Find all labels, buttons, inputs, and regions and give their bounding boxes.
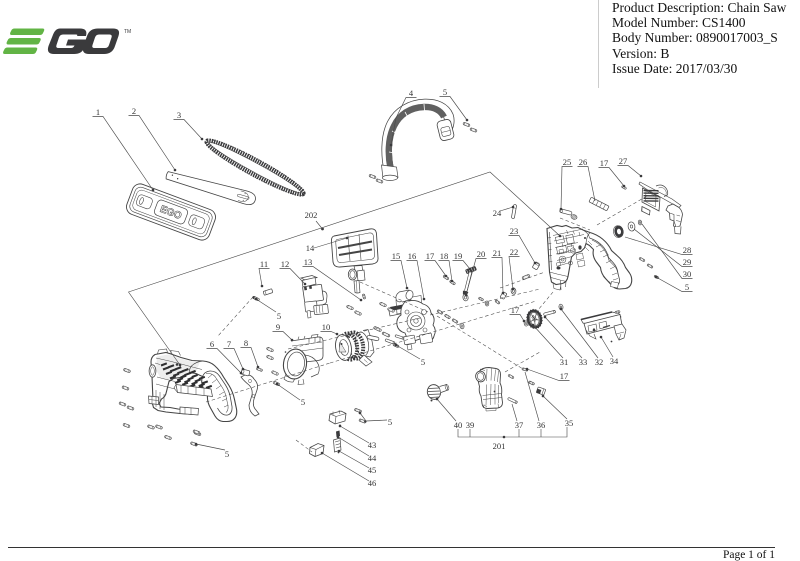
- svg-text:18: 18: [440, 251, 449, 261]
- svg-text:28: 28: [683, 245, 692, 255]
- svg-text:24: 24: [493, 208, 502, 218]
- svg-text:15: 15: [392, 251, 401, 261]
- svg-text:2: 2: [132, 106, 136, 116]
- svg-text:20: 20: [477, 249, 486, 259]
- svg-text:10: 10: [322, 322, 331, 332]
- svg-text:13: 13: [304, 257, 313, 267]
- svg-text:5: 5: [388, 417, 392, 427]
- svg-text:11: 11: [260, 259, 268, 269]
- svg-text:21: 21: [493, 248, 502, 258]
- svg-text:39: 39: [466, 420, 475, 430]
- svg-text:45: 45: [368, 465, 377, 475]
- svg-text:40: 40: [454, 420, 463, 430]
- svg-text:23: 23: [510, 226, 519, 236]
- svg-text:6: 6: [210, 339, 214, 349]
- svg-text:25: 25: [563, 157, 572, 167]
- svg-text:202: 202: [305, 210, 318, 220]
- svg-text:17: 17: [560, 371, 569, 381]
- svg-text:5: 5: [225, 449, 229, 459]
- svg-text:5: 5: [277, 311, 281, 321]
- svg-text:44: 44: [368, 453, 377, 463]
- svg-text:5: 5: [443, 87, 447, 97]
- svg-text:7: 7: [227, 339, 231, 349]
- svg-text:8: 8: [244, 338, 248, 348]
- svg-text:12: 12: [281, 259, 290, 269]
- svg-text:33: 33: [579, 357, 588, 367]
- svg-text:9: 9: [276, 322, 280, 332]
- svg-text:17: 17: [600, 158, 609, 168]
- svg-text:5: 5: [421, 357, 425, 367]
- svg-text:3: 3: [177, 110, 181, 120]
- svg-text:201: 201: [493, 441, 506, 451]
- svg-text:22: 22: [510, 247, 519, 257]
- svg-text:37: 37: [515, 420, 524, 430]
- svg-text:30: 30: [683, 269, 692, 279]
- svg-text:TM: TM: [124, 29, 131, 35]
- svg-text:46: 46: [368, 478, 377, 488]
- svg-text:1: 1: [96, 107, 100, 117]
- svg-text:35: 35: [565, 418, 574, 428]
- svg-text:32: 32: [595, 357, 604, 367]
- svg-text:31: 31: [560, 357, 569, 367]
- svg-text:17: 17: [426, 251, 435, 261]
- svg-text:5: 5: [685, 282, 689, 292]
- svg-text:29: 29: [683, 257, 692, 267]
- svg-text:26: 26: [579, 157, 588, 167]
- svg-text:17: 17: [511, 305, 520, 315]
- svg-text:43: 43: [368, 440, 377, 450]
- svg-text:14: 14: [306, 243, 315, 253]
- svg-text:36: 36: [537, 420, 546, 430]
- svg-text:5: 5: [301, 397, 305, 407]
- svg-text:19: 19: [454, 251, 463, 261]
- svg-text:27: 27: [619, 156, 628, 166]
- svg-text:4: 4: [409, 88, 414, 98]
- svg-text:16: 16: [408, 251, 417, 261]
- svg-text:34: 34: [610, 356, 619, 366]
